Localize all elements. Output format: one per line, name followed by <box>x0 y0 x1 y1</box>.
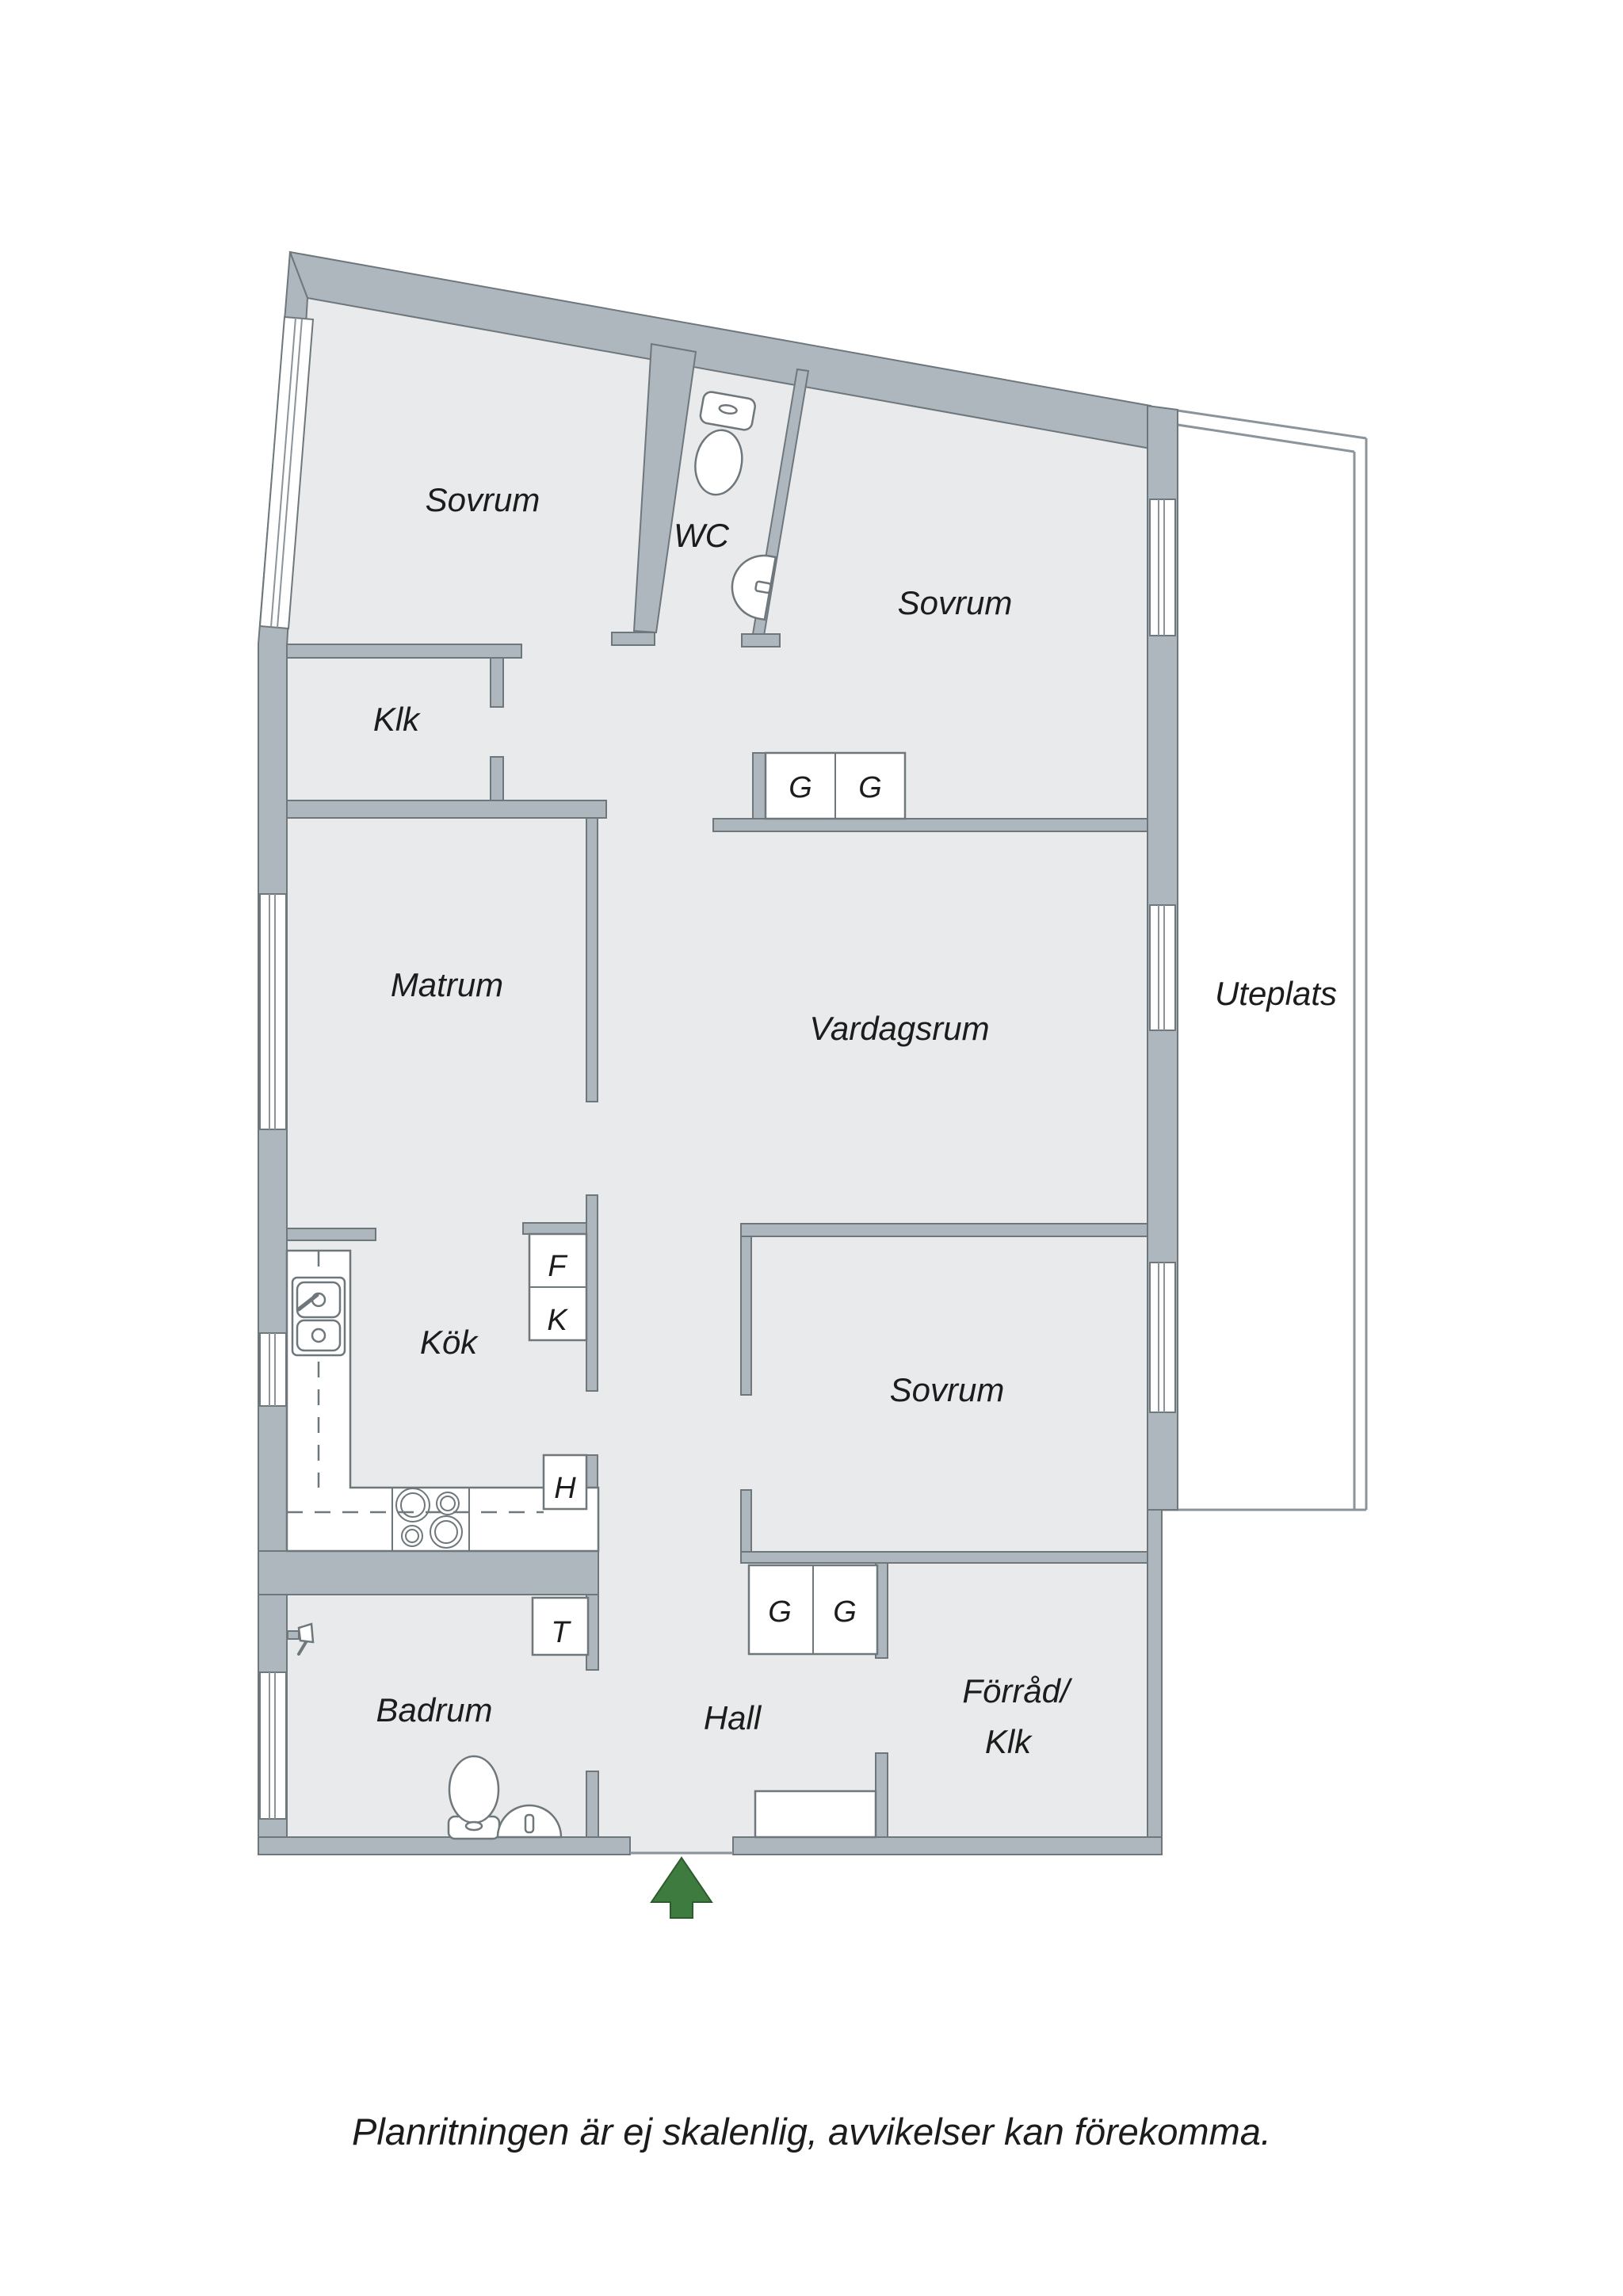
label-closet-top: Klk <box>373 701 421 738</box>
wall-klk-right-upper <box>491 658 503 707</box>
label-dryer: T <box>551 1616 571 1649</box>
window-bedroom3 <box>1150 1263 1175 1412</box>
patio-area <box>1148 411 1366 1510</box>
wall-wardrobe-stub-bedroom2 <box>753 753 766 819</box>
label-wc: WC <box>674 517 730 554</box>
label-wardrobe-g3: G <box>768 1595 792 1629</box>
wall-vardagsrum-top <box>713 819 1148 831</box>
window-kitchen <box>260 1333 286 1406</box>
window-bathroom <box>260 1672 286 1819</box>
label-bedroom-right: Sovrum <box>890 1371 1005 1408</box>
label-dining-room: Matrum <box>391 966 503 1003</box>
label-wardrobe-g1: G <box>789 771 812 804</box>
wall-wc-left-cap <box>612 632 655 645</box>
kitchen-sink-icon <box>292 1278 345 1355</box>
wall-bathroom-top <box>258 1551 598 1595</box>
wall-matrum-top <box>287 800 606 818</box>
label-bedroom-top-right: Sovrum <box>898 584 1013 621</box>
wall-kitchen-divider-lower <box>586 1195 598 1391</box>
patio-fill <box>1178 411 1366 1510</box>
wall-bottom-right-segment <box>733 1837 1162 1855</box>
label-wardrobe-g4: G <box>833 1595 857 1629</box>
wall-bottom-left-segment <box>258 1837 630 1855</box>
label-storage-line1: Förråd/ <box>962 1672 1073 1710</box>
disclaimer-caption: Planritningen är ej skalenlig, avvikelse… <box>352 2111 1271 2153</box>
label-kitchen: Kök <box>420 1324 479 1361</box>
label-bathroom: Badrum <box>376 1691 492 1729</box>
wall-bedroom3-top <box>741 1224 1148 1236</box>
label-living-room: Vardagsrum <box>809 1010 989 1047</box>
wall-bathroom-right-lower <box>586 1771 598 1837</box>
window-vardagsrum <box>1150 905 1175 1030</box>
floor-plan: Sovrum WC Sovrum Klk Matrum Vardagsrum U… <box>0 0 1623 2296</box>
label-patio: Uteplats <box>1215 975 1337 1012</box>
hall-cabinet <box>755 1791 876 1837</box>
bathroom-toilet-icon <box>449 1756 499 1839</box>
label-freezer: F <box>548 1250 567 1283</box>
wall-right-lower <box>1148 1510 1162 1855</box>
window-bedroom2 <box>1150 499 1175 636</box>
label-bedroom-top-left: Sovrum <box>426 481 540 518</box>
label-tall-cabinet: H <box>554 1472 576 1505</box>
wall-divider-matrum-vardagsrum <box>586 818 598 1102</box>
label-hall: Hall <box>704 1699 762 1736</box>
wall-kitchen-top-stub <box>287 1228 376 1240</box>
wall-hall-wardrobe-right-lower <box>876 1753 888 1837</box>
entry-arrow-icon <box>651 1858 712 1918</box>
label-fridge: K <box>547 1304 568 1337</box>
window-matrum <box>260 894 286 1129</box>
label-wardrobe-g2: G <box>858 771 882 804</box>
wall-matrum-bottom-stub <box>523 1223 586 1234</box>
floor-plan-page: Sovrum WC Sovrum Klk Matrum Vardagsrum U… <box>0 0 1623 2296</box>
label-storage-line2: Klk <box>985 1723 1033 1760</box>
wall-bedroom3-bottom <box>741 1552 1148 1563</box>
wall-klk-top <box>287 644 521 658</box>
wall-wc-right-cap <box>742 634 780 647</box>
wall-bedroom3-left-upper <box>741 1236 751 1395</box>
